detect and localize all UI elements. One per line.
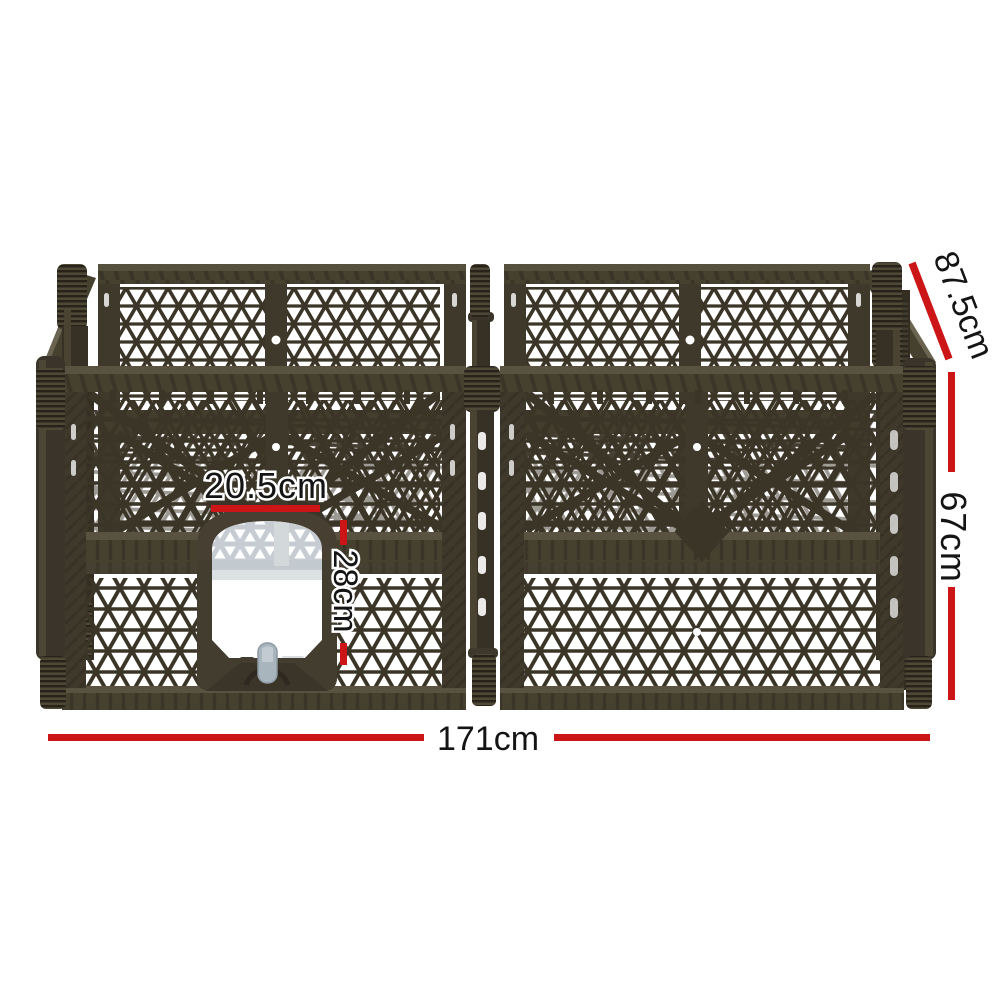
- svg-text:67cm: 67cm: [933, 491, 974, 582]
- svg-text:28cm: 28cm: [326, 549, 364, 632]
- svg-text:20.5cm: 20.5cm: [204, 465, 328, 506]
- svg-text:171cm: 171cm: [437, 720, 539, 758]
